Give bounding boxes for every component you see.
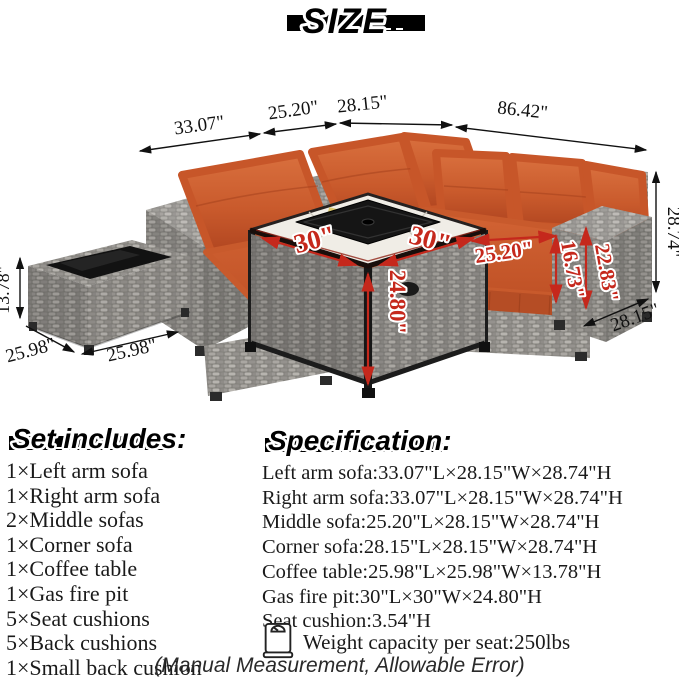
spec-item: Gas fire pit:30"L×30"W×24.80"H — [262, 585, 623, 610]
set-includes-list: 1×Left arm sofa 1×Right arm sofa 2×Middl… — [6, 459, 246, 680]
spec-item: Coffee table:25.98"L×25.98"W×13.78"H — [262, 560, 623, 585]
dim-label-coffee-table-height: 13.78" — [0, 266, 13, 314]
weight-capacity-text: Weight capacity per seat:250lbs — [303, 630, 570, 655]
spec-item: Right arm sofa:33.07"L×28.15"W×28.74"H — [262, 486, 623, 511]
set-includes-heading: Set includes: — [12, 423, 186, 454]
list-item: 2×Middle sofas — [6, 508, 246, 533]
dim-label-right-run-length: 86.42" — [496, 97, 548, 123]
specification-list: Left arm sofa:33.07"L×28.15"W×28.74"H Ri… — [262, 461, 623, 634]
list-item: 1×Corner sofa — [6, 533, 246, 558]
footer-note: (Manual Measurement, Allowable Error) — [0, 654, 679, 678]
list-item: 5×Seat cushions — [6, 607, 246, 632]
size-infographic: SIZE — [0, 0, 679, 687]
size-title-banner: SIZE — [287, 2, 425, 41]
list-item: 1×Coffee table — [6, 557, 246, 582]
spec-item: Left arm sofa:33.07"L×28.15"W×28.74"H — [262, 461, 623, 486]
set-includes-section: Set includes: 1×Left arm sofa 1×Right ar… — [6, 417, 246, 680]
set-includes-header: Set includes: — [6, 417, 246, 454]
list-item: 1×Left arm sofa — [6, 459, 246, 484]
spec-item: Corner sofa:28.15"L×28.15"W×28.74"H — [262, 535, 623, 560]
specification-section: Specification: Left arm sofa:33.07"L×28.… — [262, 419, 623, 634]
dim-label-middle-sofa-length: 25.20" — [267, 97, 320, 125]
specification-heading: Specification: — [268, 425, 452, 456]
furniture-diagram: SIZE — [0, 0, 679, 415]
dim-label-corner-sofa-length: 28.15" — [336, 91, 388, 117]
specification-header: Specification: — [262, 419, 542, 456]
dim-label-sofa-height: 28.74" — [663, 207, 679, 258]
dim-label-coffee-table-side: 25.98" — [3, 334, 57, 367]
list-item: 5×Back cushions — [6, 631, 246, 656]
list-item: 1×Gas fire pit — [6, 582, 246, 607]
dim-label-firepit-height: 24.80" — [385, 270, 410, 335]
spec-item: Middle sofa:25.20"L×28.15"W×28.74"H — [262, 510, 623, 535]
dim-label-left-sofa-length: 33.07" — [173, 112, 226, 140]
list-item: 1×Right arm sofa — [6, 484, 246, 509]
page-title: SIZE — [302, 2, 388, 41]
